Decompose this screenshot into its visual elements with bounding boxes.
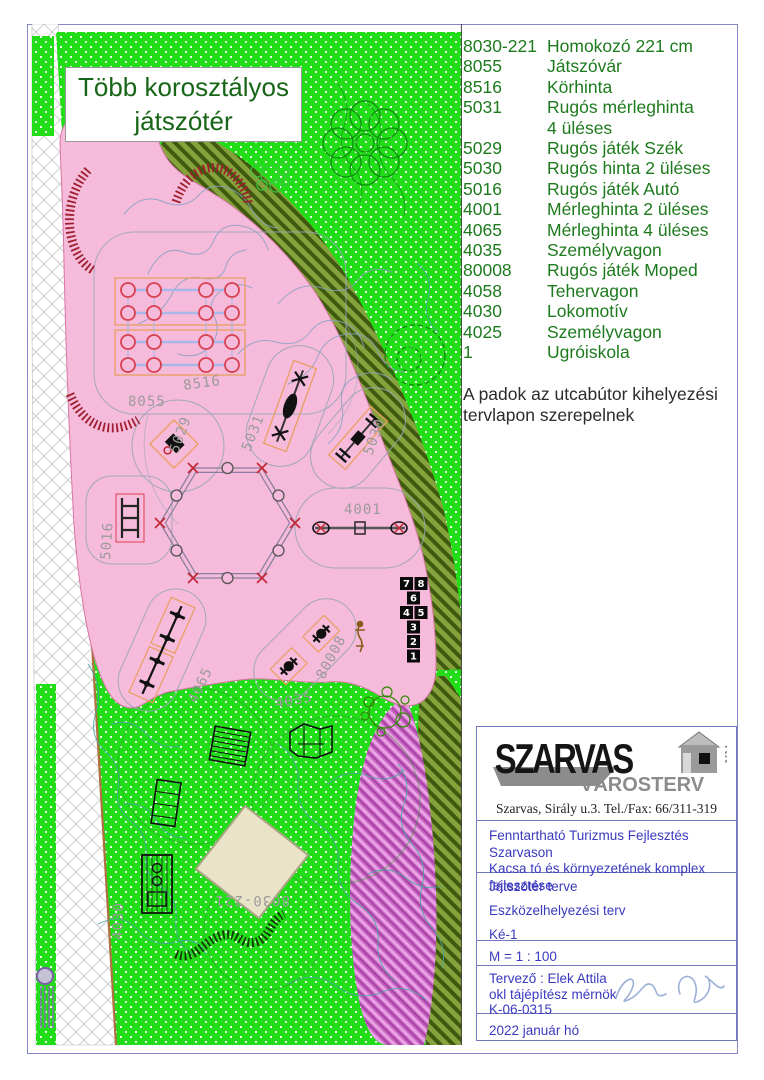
legend-name: Körhinta xyxy=(547,77,612,97)
plan-title: Több korosztályos játszótér xyxy=(65,67,302,142)
legend-name: Mérleghinta 4 üléses xyxy=(547,220,708,240)
date-value: 2022 január hó xyxy=(489,1023,579,1038)
date-cell: 2022 január hó xyxy=(477,1014,736,1041)
map-label: 4030 xyxy=(110,902,127,940)
plan-sheet: { "plan": { "title": "Több korosztályos\… xyxy=(0,0,764,1080)
logo-company-suffix: Kft xyxy=(722,745,727,764)
legend-name: Ugróiskola xyxy=(547,342,630,362)
legend-row: 5030Rugós hinta 2 üléses xyxy=(463,158,737,178)
svg-text:5: 5 xyxy=(418,608,425,619)
legend-row: 4065Mérleghinta 4 üléses xyxy=(463,220,737,240)
legend-code: 5016 xyxy=(463,179,547,199)
legend-name: Mérleghinta 2 üléses xyxy=(547,199,708,219)
scale-value: M = 1 : 100 xyxy=(489,949,557,964)
scale-cell: M = 1 : 100 xyxy=(477,941,736,966)
legend-name: Játszóvár xyxy=(547,56,622,76)
legend-row: 1Ugróiskola xyxy=(463,342,737,362)
svg-text:6: 6 xyxy=(410,594,417,605)
logo-company-sub: VÁROSTERV xyxy=(580,773,705,796)
legend-note: A padok az utcabútor kihelyezési tervlap… xyxy=(463,384,741,426)
legend-row: 8516Körhinta xyxy=(463,77,737,97)
legend-code: 8516 xyxy=(463,77,547,97)
legend-row: 5016Rugós játék Autó xyxy=(463,179,737,199)
legend-code: 8030-221 xyxy=(463,36,547,56)
legend-code: 5031 xyxy=(463,97,547,138)
legend-code: 4030 xyxy=(463,301,547,321)
legend-name: Rugós játék Szék xyxy=(547,138,683,158)
signature xyxy=(610,968,730,1012)
svg-text:4: 4 xyxy=(403,608,410,619)
legend-name: Rugós játék Autó xyxy=(547,179,679,199)
map-label: 4001 xyxy=(344,502,382,518)
document-titles: Játszótér terve Eszközelhelyezési terv K… xyxy=(477,873,736,941)
company-logo: SZARVAS VÁROSTERV Kft xyxy=(487,731,727,797)
map-label: 5016 xyxy=(98,522,117,561)
svg-text:3: 3 xyxy=(410,623,417,634)
legend-code: 4065 xyxy=(463,220,547,240)
legend-row: 4001Mérleghinta 2 üléses xyxy=(463,199,737,219)
legend-name: Személyvagon xyxy=(547,322,662,342)
legend-row: 8030-221Homokozó 221 cm xyxy=(463,36,737,56)
site-plan-map: 7 8 6 4 5 3 2 1 8055 8 xyxy=(28,24,462,1053)
doc-title-2: Eszközelhelyezési terv xyxy=(489,903,736,918)
svg-text:1: 1 xyxy=(410,652,417,663)
legend-row: 5031Rugós mérleghinta 4 üléses xyxy=(463,97,737,138)
title-block: SZARVAS VÁROSTERV Kft Szarvas, Sirály u.… xyxy=(476,726,737,1041)
legend-row: 4058Tehervagon xyxy=(463,281,737,301)
legend-code: 4025 xyxy=(463,322,547,342)
lawn-sliver-top xyxy=(32,36,54,136)
company-address: Szarvas, Sirály u.3. Tel./Fax: 66/311-31… xyxy=(477,801,736,817)
legend-code: 80008 xyxy=(463,260,547,280)
legend-name: Rugós hinta 2 üléses xyxy=(547,158,710,178)
legend-name: Tehervagon xyxy=(547,281,638,301)
legend-row: 8055Játszóvár xyxy=(463,56,737,76)
legend-code: 4001 xyxy=(463,199,547,219)
legend-row: 4035Személyvagon xyxy=(463,240,737,260)
map-label: 8055 xyxy=(128,394,166,410)
logo-house-icon xyxy=(679,732,719,773)
legend-name: Homokozó 221 cm xyxy=(547,36,693,56)
legend-row: 80008Rugós játék Moped xyxy=(463,260,737,280)
company-logo-cell: SZARVAS VÁROSTERV Kft Szarvas, Sirály u.… xyxy=(477,727,736,821)
legend-row: 5029Rugós játék Szék xyxy=(463,138,737,158)
equipment-legend: 8030-221Homokozó 221 cm 8055Játszóvár 85… xyxy=(463,36,737,363)
legend-name: Rugós mérleghinta 4 üléses xyxy=(547,97,694,138)
legend-code: 4058 xyxy=(463,281,547,301)
svg-text:2: 2 xyxy=(410,637,417,648)
legend-code: 5029 xyxy=(463,138,547,158)
legend-code: 1 xyxy=(463,342,547,362)
legend-row: 4025Személyvagon xyxy=(463,322,737,342)
legend-name: Rugós játék Moped xyxy=(547,260,698,280)
svg-text:8: 8 xyxy=(418,579,425,590)
legend-code: 5030 xyxy=(463,158,547,178)
map-label: 8030-221 xyxy=(215,892,290,908)
doc-sheet-code: Ké-1 xyxy=(489,927,736,942)
legend-row: 4030Lokomotív xyxy=(463,301,737,321)
legend-name: Lokomotív xyxy=(547,301,628,321)
legend-code: 8055 xyxy=(463,56,547,76)
legend-code: 4035 xyxy=(463,240,547,260)
designer-cell: Tervező : Elek Attila okl tájépítész mér… xyxy=(477,966,736,1014)
legend-name: Személyvagon xyxy=(547,240,662,260)
doc-title-1: Játszótér terve xyxy=(489,879,736,894)
project-title: Fenntartható Turizmus Fejlesztés Szarvas… xyxy=(477,821,736,873)
svg-text:7: 7 xyxy=(403,579,410,590)
